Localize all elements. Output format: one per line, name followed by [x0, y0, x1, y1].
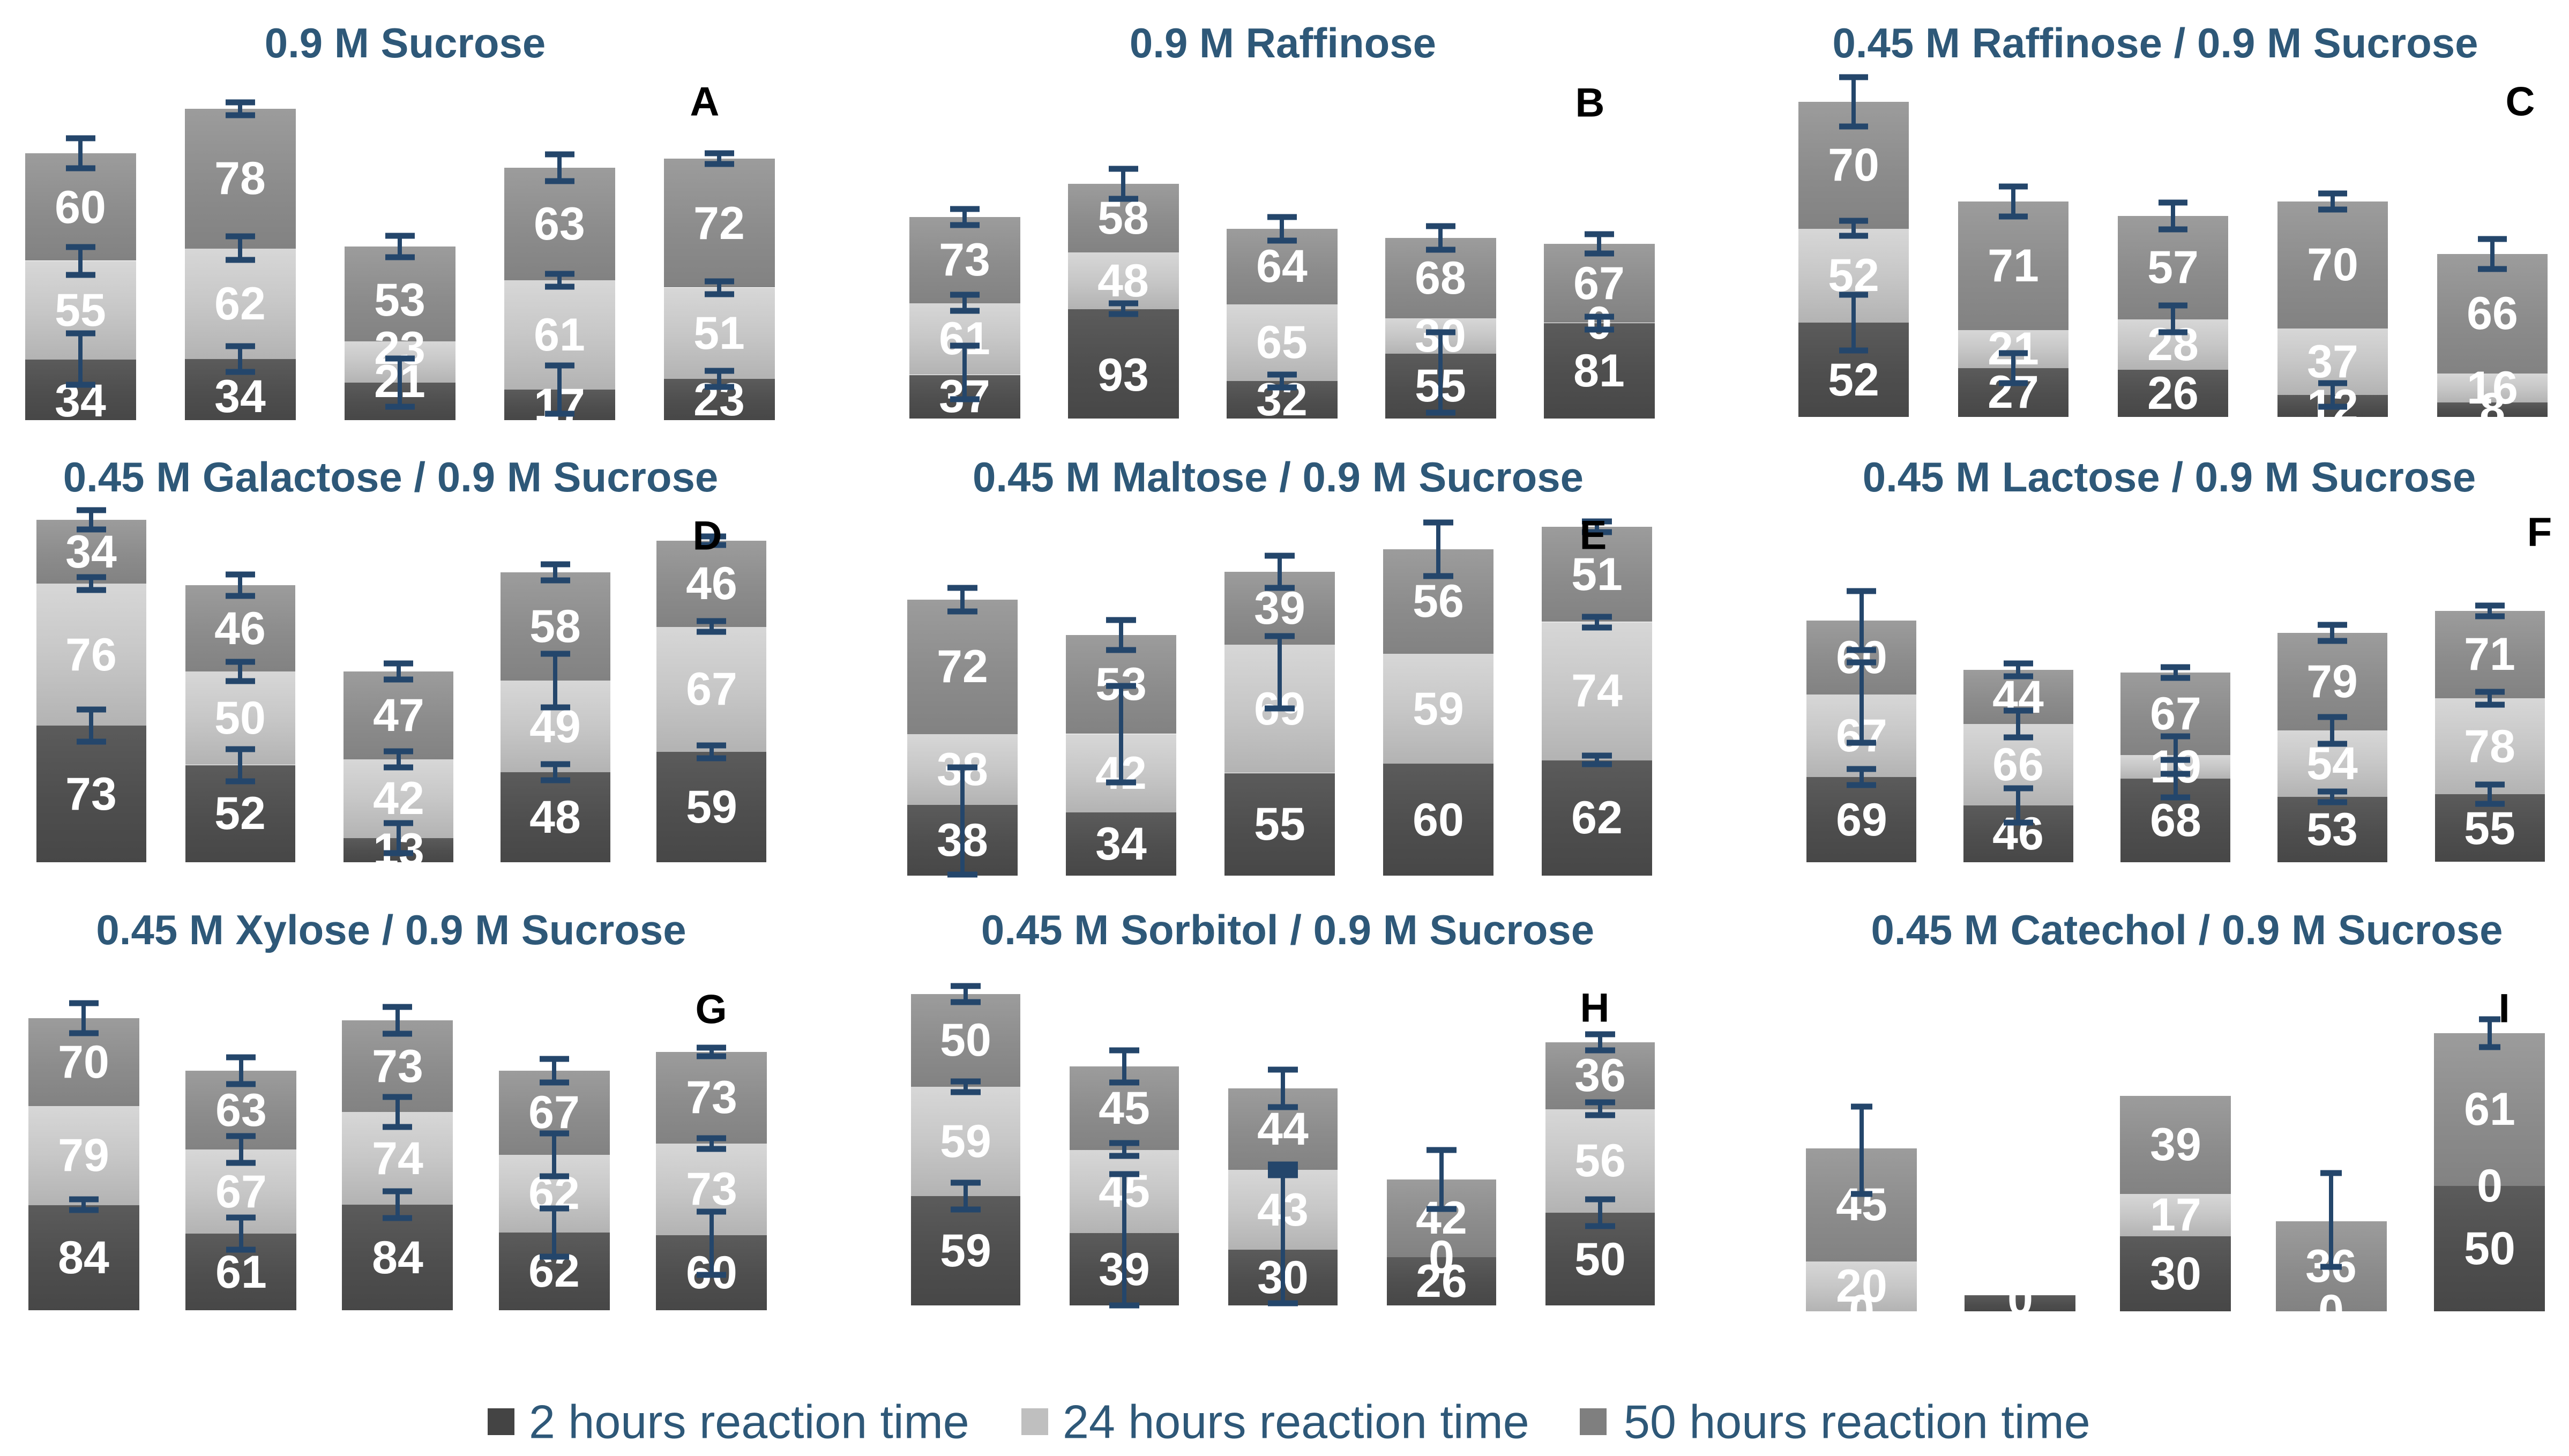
svg-text:84: 84 [58, 1232, 109, 1283]
svg-text:50: 50 [1574, 1234, 1626, 1285]
svg-text:64: 64 [1256, 241, 1308, 292]
svg-text:0.45 M Catechol / 0.9 M Sucros: 0.45 M Catechol / 0.9 M Sucrose [1871, 906, 2503, 953]
svg-text:59: 59 [940, 1225, 991, 1276]
svg-text:78: 78 [214, 153, 266, 204]
svg-text:34: 34 [214, 371, 266, 422]
svg-text:0.45 M Maltose / 0.9 M Sucrose: 0.45 M Maltose / 0.9 M Sucrose [973, 453, 1584, 501]
svg-text:65: 65 [1256, 317, 1308, 368]
svg-text:76: 76 [65, 629, 117, 681]
svg-text:74: 74 [1571, 665, 1623, 716]
svg-text:50 hours reaction time: 50 hours reaction time [1624, 1395, 2090, 1448]
svg-text:34: 34 [65, 526, 117, 578]
svg-text:57: 57 [2147, 242, 2199, 293]
svg-text:73: 73 [686, 1072, 737, 1123]
svg-text:84: 84 [372, 1232, 423, 1283]
svg-text:46: 46 [686, 558, 737, 609]
svg-text:56: 56 [1574, 1135, 1626, 1186]
svg-text:79: 79 [58, 1130, 109, 1181]
svg-text:74: 74 [372, 1133, 423, 1184]
svg-text:0: 0 [2007, 1273, 2033, 1325]
svg-text:68: 68 [2150, 795, 2201, 846]
svg-text:G: G [695, 987, 727, 1033]
svg-text:51: 51 [693, 308, 745, 359]
svg-text:0.9 M Sucrose: 0.9 M Sucrose [265, 19, 546, 66]
svg-text:81: 81 [1573, 345, 1625, 397]
svg-text:50: 50 [214, 692, 266, 744]
svg-text:50: 50 [2464, 1223, 2515, 1274]
svg-text:73: 73 [939, 234, 990, 286]
svg-text:56: 56 [1413, 576, 1464, 627]
svg-text:0: 0 [2318, 1286, 2344, 1337]
svg-text:E: E [1580, 513, 1607, 558]
svg-text:26: 26 [2147, 368, 2199, 419]
svg-text:48: 48 [529, 792, 581, 843]
svg-text:62: 62 [1571, 792, 1623, 843]
svg-text:47: 47 [373, 690, 424, 741]
svg-text:I: I [2498, 986, 2510, 1032]
svg-text:67: 67 [686, 663, 737, 715]
svg-text:37: 37 [2307, 336, 2358, 387]
svg-text:0.45 M Galactose / 0.9 M Sucro: 0.45 M Galactose / 0.9 M Sucrose [63, 453, 719, 501]
svg-text:59: 59 [1413, 683, 1464, 735]
svg-text:44: 44 [1257, 1103, 1309, 1155]
svg-text:53: 53 [374, 274, 425, 326]
svg-text:73: 73 [372, 1041, 423, 1092]
svg-text:78: 78 [2464, 721, 2515, 772]
svg-text:71: 71 [2464, 629, 2515, 680]
svg-text:16: 16 [2467, 362, 2518, 414]
svg-text:2 hours reaction time: 2 hours reaction time [529, 1395, 969, 1448]
svg-text:55: 55 [2464, 803, 2515, 854]
svg-text:60: 60 [1413, 794, 1464, 846]
svg-text:0.45 M Sorbitol / 0.9 M Sucros: 0.45 M Sorbitol / 0.9 M Sucrose [981, 906, 1594, 953]
svg-text:D: D [693, 513, 722, 559]
svg-text:69: 69 [1836, 794, 1887, 846]
svg-text:58: 58 [529, 601, 581, 652]
svg-text:60: 60 [55, 182, 106, 233]
svg-text:50: 50 [940, 1014, 991, 1066]
svg-text:17: 17 [2150, 1189, 2201, 1241]
svg-text:63: 63 [534, 198, 585, 250]
svg-text:34: 34 [1095, 818, 1147, 870]
svg-text:42: 42 [373, 773, 424, 824]
svg-text:53: 53 [2306, 804, 2358, 855]
svg-text:67: 67 [215, 1166, 267, 1218]
svg-text:72: 72 [693, 198, 745, 249]
svg-text:52: 52 [214, 788, 266, 839]
svg-text:55: 55 [1254, 798, 1305, 850]
svg-text:59: 59 [686, 781, 737, 833]
svg-text:72: 72 [937, 641, 988, 692]
svg-text:39: 39 [2150, 1119, 2201, 1170]
svg-text:61: 61 [215, 1246, 267, 1298]
svg-text:B: B [1575, 80, 1605, 126]
svg-text:71: 71 [1988, 240, 2039, 292]
svg-text:46: 46 [214, 603, 266, 654]
svg-text:0.9 M Raffinose: 0.9 M Raffinose [1130, 19, 1436, 66]
svg-text:45: 45 [1099, 1082, 1150, 1134]
svg-text:36: 36 [1574, 1050, 1626, 1101]
svg-text:66: 66 [1992, 739, 2044, 790]
svg-text:48: 48 [1097, 255, 1149, 307]
svg-text:0.45 M Raffinose / 0.9 M Sucro: 0.45 M Raffinose / 0.9 M Sucrose [1832, 19, 2478, 66]
svg-text:61: 61 [2464, 1084, 2515, 1135]
svg-text:73: 73 [65, 768, 117, 820]
svg-text:C: C [2506, 79, 2535, 125]
svg-text:0.45 M Lactose / 0.9 M Sucrose: 0.45 M Lactose / 0.9 M Sucrose [1863, 453, 2476, 501]
svg-text:A: A [690, 79, 720, 125]
svg-text:H: H [1580, 985, 1610, 1031]
svg-text:66: 66 [2467, 288, 2518, 339]
svg-text:63: 63 [215, 1085, 267, 1136]
svg-text:70: 70 [2307, 239, 2358, 290]
svg-text:55: 55 [55, 285, 106, 336]
svg-text:67: 67 [1573, 258, 1625, 309]
svg-text:0.45 M Xylose / 0.9 M Sucrose: 0.45 M Xylose / 0.9 M Sucrose [96, 906, 686, 953]
svg-text:0: 0 [2477, 1160, 2503, 1212]
svg-text:24 hours reaction time: 24 hours reaction time [1063, 1395, 1529, 1448]
svg-text:68: 68 [1415, 252, 1466, 304]
svg-text:62: 62 [214, 278, 266, 330]
svg-text:52: 52 [1828, 354, 1879, 406]
svg-text:30: 30 [2150, 1248, 2201, 1300]
svg-text:61: 61 [534, 309, 585, 361]
svg-text:20: 20 [1836, 1260, 1887, 1312]
svg-text:73: 73 [686, 1163, 737, 1215]
svg-text:70: 70 [58, 1036, 109, 1088]
svg-text:79: 79 [2306, 656, 2358, 707]
svg-text:F: F [2527, 510, 2552, 555]
svg-text:93: 93 [1097, 349, 1149, 401]
svg-text:70: 70 [1828, 139, 1879, 191]
svg-text:59: 59 [940, 1116, 991, 1167]
svg-text:67: 67 [2150, 688, 2201, 740]
